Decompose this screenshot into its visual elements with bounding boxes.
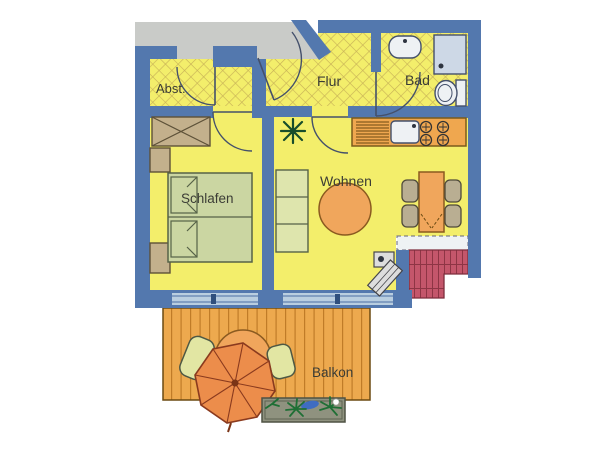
dining-chair-icon <box>445 205 461 227</box>
wall-right <box>468 20 481 278</box>
wall-flur-bad <box>371 33 381 72</box>
wall-top-abst-left <box>135 46 177 59</box>
shelf-sofa-icon <box>276 170 308 252</box>
wall-kitchen-top <box>348 106 468 118</box>
wall-top <box>318 20 481 33</box>
roof-hatch-area <box>409 250 468 298</box>
kitchenette <box>352 118 466 146</box>
window-tick <box>335 294 340 304</box>
dining-chair-icon <box>445 180 461 202</box>
faucet-icon <box>412 124 416 128</box>
wall-abst-schlafen <box>150 106 213 118</box>
dining-chair-icon <box>402 205 418 227</box>
room-label-abst: Abst. <box>156 81 186 96</box>
room-label-flur: Flur <box>317 73 341 89</box>
wall-left <box>135 46 150 308</box>
wall-schlafen-wohnen <box>262 106 274 290</box>
room-label-balkon: Balkon <box>312 365 353 380</box>
wall-top-abst-right <box>213 46 257 67</box>
basin-faucet-icon <box>403 39 407 43</box>
roof-slope-strip <box>397 236 468 250</box>
floor-plan-canvas: Abst. Flur Bad Schlafen Wohnen Balkon <box>0 0 600 450</box>
room-label-bad: Bad <box>405 72 430 88</box>
white-flower-icon <box>333 399 339 405</box>
dining-chair-icon <box>402 180 418 202</box>
room-label-schlafen: Schlafen <box>181 191 234 206</box>
nightstand-icon <box>150 243 170 273</box>
room-label-wohnen: Wohnen <box>320 173 372 189</box>
dining-table-icon <box>419 172 444 232</box>
shower-icon <box>434 35 466 74</box>
round-table-icon <box>319 183 371 235</box>
planter-box <box>262 397 345 422</box>
window-tick <box>211 294 216 304</box>
plant-icon <box>281 119 305 143</box>
floor-plan-drawing: Abst. Flur Bad Schlafen Wohnen Balkon <box>0 0 600 450</box>
nightstand-icon <box>150 148 170 172</box>
wall-abst-flur <box>252 59 266 106</box>
shower-drain-icon <box>439 64 444 69</box>
wall-lower-right <box>396 250 409 308</box>
